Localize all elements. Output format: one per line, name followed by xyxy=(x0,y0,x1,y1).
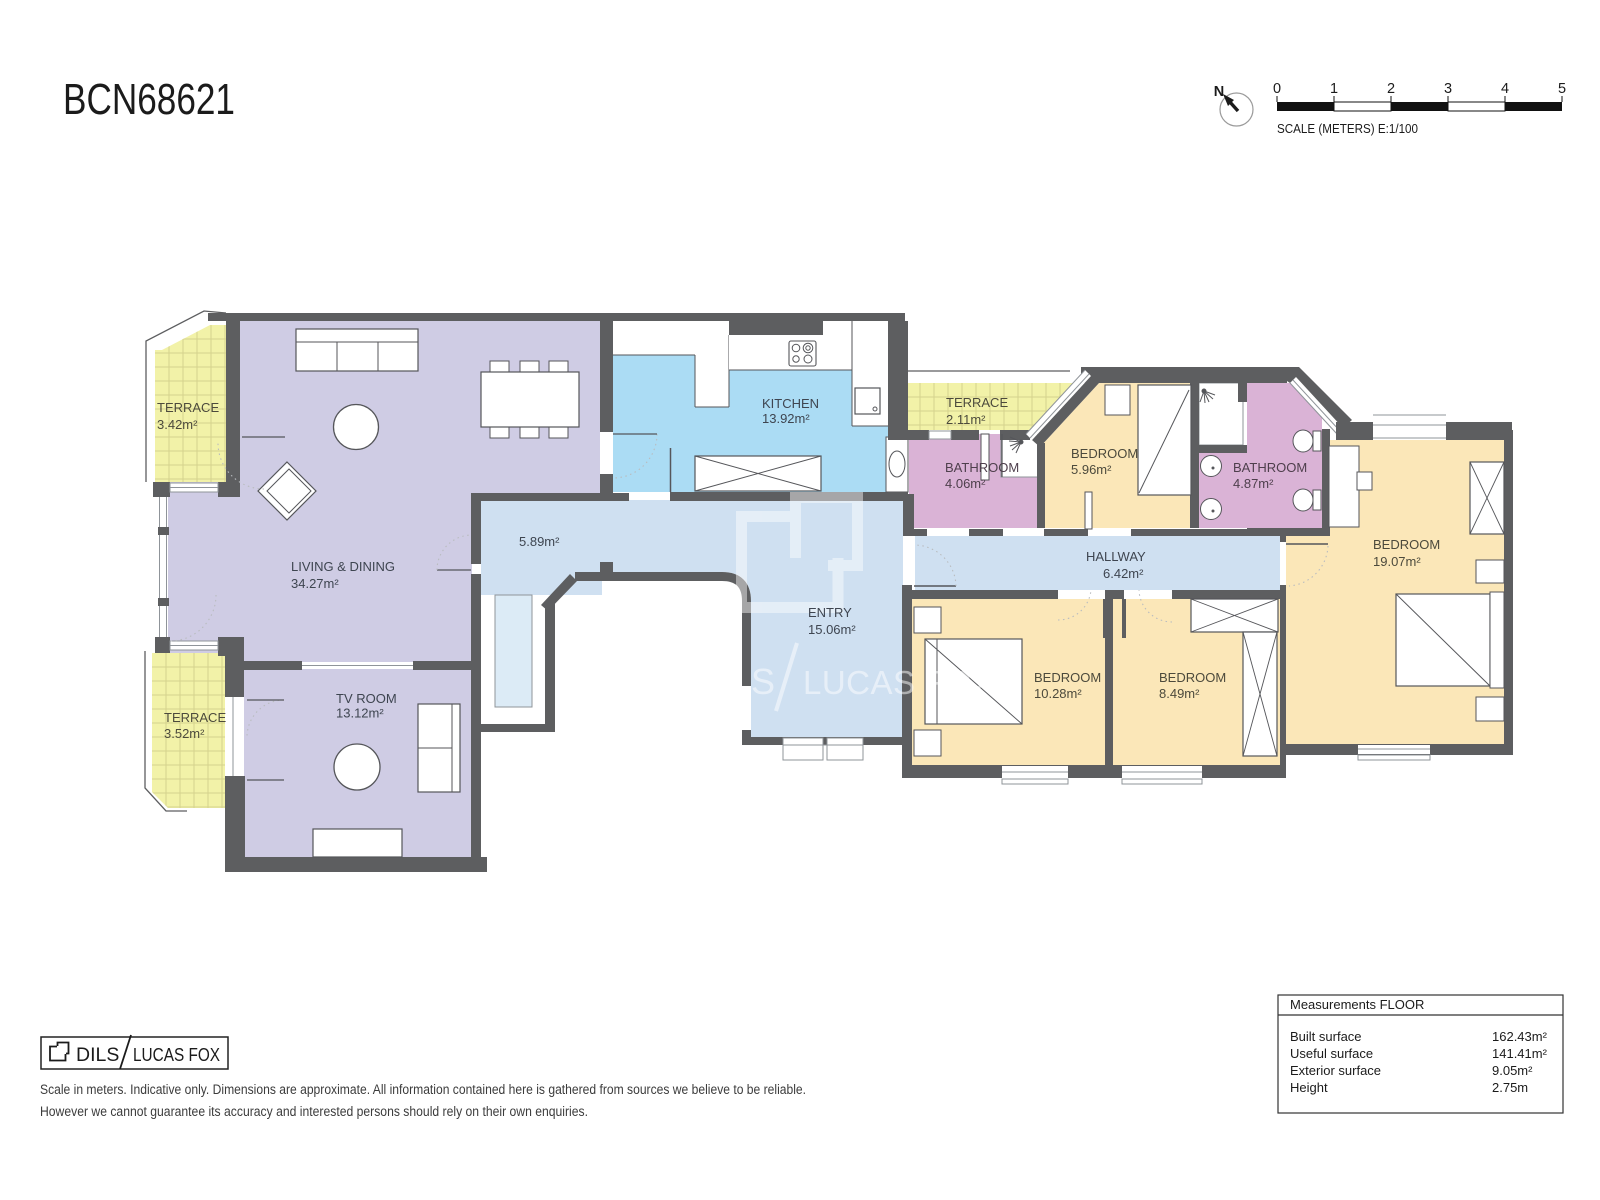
svg-text:BATHROOM: BATHROOM xyxy=(1233,460,1307,475)
svg-text:19.07m²: 19.07m² xyxy=(1373,554,1421,569)
svg-text:10.28m²: 10.28m² xyxy=(1034,686,1082,701)
svg-text:DILS: DILS xyxy=(692,661,776,702)
svg-text:4.87m²: 4.87m² xyxy=(1233,476,1274,491)
svg-text:1: 1 xyxy=(1330,81,1338,97)
svg-text:162.43m²: 162.43m² xyxy=(1492,1029,1548,1044)
svg-text:141.41m²: 141.41m² xyxy=(1492,1046,1548,1061)
svg-text:8.49m²: 8.49m² xyxy=(1159,686,1200,701)
svg-text:Useful surface: Useful surface xyxy=(1290,1046,1373,1061)
svg-text:4: 4 xyxy=(1501,81,1509,97)
svg-text:TERRACE: TERRACE xyxy=(157,400,219,415)
svg-text:DILS: DILS xyxy=(76,1044,119,1066)
svg-text:4.06m²: 4.06m² xyxy=(945,476,986,491)
svg-text:Measurements FLOOR: Measurements FLOOR xyxy=(1290,997,1424,1012)
svg-text:SCALE (METERS) E:1/100: SCALE (METERS) E:1/100 xyxy=(1277,121,1418,136)
svg-text:5: 5 xyxy=(1558,81,1566,97)
svg-text:TV ROOM: TV ROOM xyxy=(336,691,397,706)
svg-text:BEDROOM: BEDROOM xyxy=(1071,446,1138,461)
svg-text:BEDROOM: BEDROOM xyxy=(1373,537,1440,552)
svg-text:BEDROOM: BEDROOM xyxy=(1034,670,1101,685)
svg-text:N: N xyxy=(1214,84,1224,100)
svg-text:3: 3 xyxy=(1444,81,1452,97)
svg-text:2: 2 xyxy=(1387,81,1395,97)
svg-text:BCN68621: BCN68621 xyxy=(63,75,235,124)
svg-text:Built surface: Built surface xyxy=(1290,1029,1362,1044)
svg-text:5.89m²: 5.89m² xyxy=(519,534,560,549)
svg-text:13.12m²: 13.12m² xyxy=(336,706,384,721)
svg-text:9.05m²: 9.05m² xyxy=(1492,1063,1533,1078)
svg-text:13.92m²: 13.92m² xyxy=(762,411,810,426)
svg-text:LUCAS FOX: LUCAS FOX xyxy=(803,664,995,701)
svg-text:KITCHEN: KITCHEN xyxy=(762,396,819,411)
svg-text:5.96m²: 5.96m² xyxy=(1071,462,1112,477)
svg-text:15.06m²: 15.06m² xyxy=(808,622,856,637)
svg-text:Scale in meters. Indicative on: Scale in meters. Indicative only. Dimens… xyxy=(40,1082,806,1097)
svg-text:However we cannot guarantee it: However we cannot guarantee its accuracy… xyxy=(40,1104,588,1119)
svg-text:Exterior surface: Exterior surface xyxy=(1290,1063,1381,1078)
svg-text:LIVING & DINING: LIVING & DINING xyxy=(291,559,395,574)
svg-text:BEDROOM: BEDROOM xyxy=(1159,670,1226,685)
svg-text:2.75m: 2.75m xyxy=(1492,1080,1528,1095)
svg-text:TERRACE: TERRACE xyxy=(946,395,1008,410)
svg-text:34.27m²: 34.27m² xyxy=(291,576,339,591)
svg-text:Height: Height xyxy=(1290,1080,1328,1095)
svg-text:2.11m²: 2.11m² xyxy=(946,412,986,427)
svg-text:0: 0 xyxy=(1273,81,1281,97)
svg-text:ENTRY: ENTRY xyxy=(808,605,852,620)
svg-text:TERRACE: TERRACE xyxy=(164,710,226,725)
svg-text:BATHROOM: BATHROOM xyxy=(945,460,1019,475)
svg-text:6.42m²: 6.42m² xyxy=(1103,566,1144,581)
svg-text:3.42m²: 3.42m² xyxy=(157,417,198,432)
svg-text:HALLWAY: HALLWAY xyxy=(1086,549,1146,564)
svg-text:3.52m²: 3.52m² xyxy=(164,726,205,741)
svg-text:LUCAS FOX: LUCAS FOX xyxy=(133,1045,220,1065)
